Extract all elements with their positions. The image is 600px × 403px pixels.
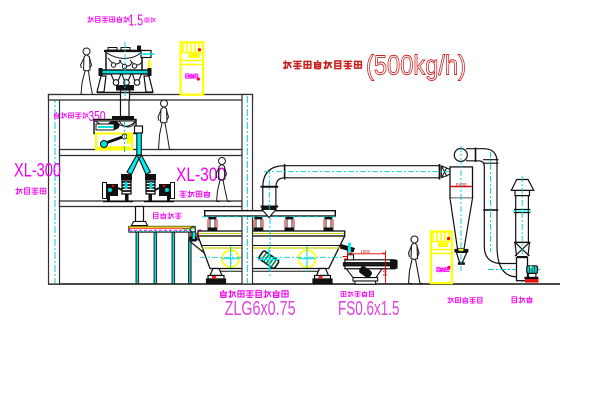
svg-text:FS0.6x1.5: FS0.6x1.5 <box>338 298 400 320</box>
svg-text:P400: P400 <box>456 182 467 187</box>
svg-text:(500kg/h): (500kg/h) <box>366 50 466 81</box>
svg-text:540: 540 <box>383 267 389 276</box>
svg-text:XL-300: XL-300 <box>14 160 61 182</box>
svg-text:1500: 1500 <box>361 249 371 254</box>
svg-text:1.5: 1.5 <box>129 13 144 30</box>
svg-text:ZLG6x0.75: ZLG6x0.75 <box>225 298 296 320</box>
